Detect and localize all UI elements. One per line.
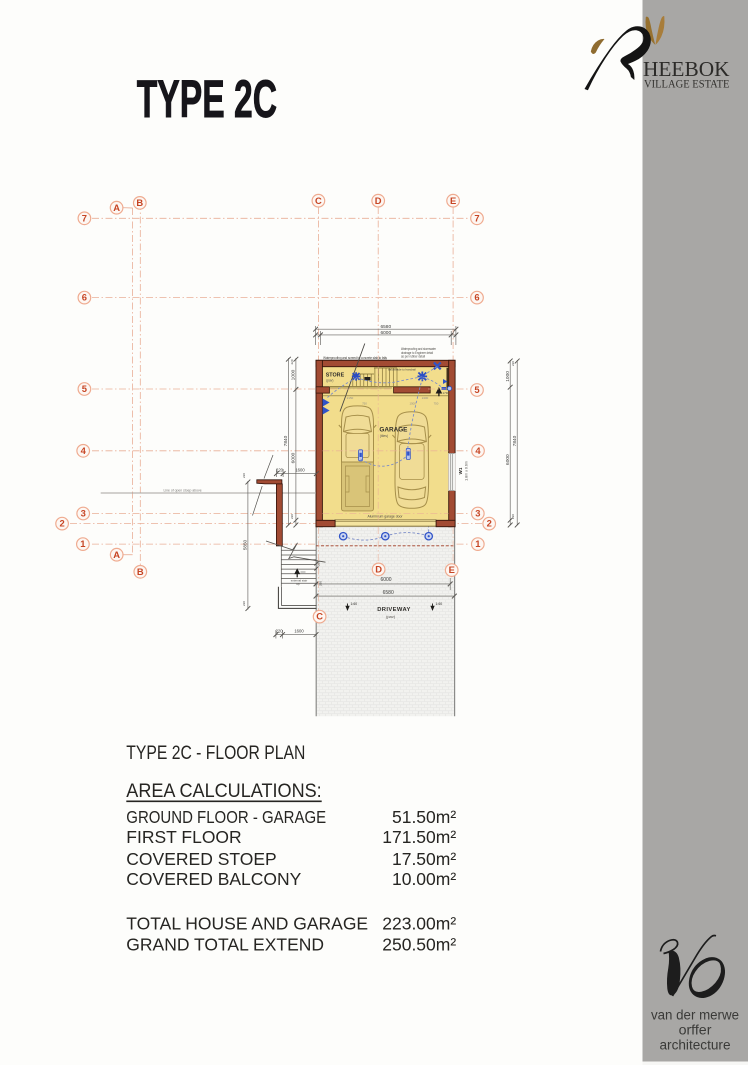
svg-text:6: 6 [82, 292, 87, 303]
svg-text:6580: 6580 [380, 324, 391, 330]
svg-text:AREA CALCULATIONS:: AREA CALCULATIONS: [126, 781, 321, 802]
svg-text:1500: 1500 [409, 402, 416, 406]
svg-text:750: 750 [434, 402, 439, 406]
svg-text:750: 750 [362, 402, 367, 406]
svg-text:6580: 6580 [383, 590, 394, 596]
svg-text:B: B [136, 197, 143, 208]
svg-text:1:60: 1:60 [351, 602, 358, 606]
svg-text:FIRST FLOOR: FIRST FLOOR [126, 827, 241, 847]
svg-text:GARAGE: GARAGE [379, 426, 408, 433]
svg-text:7840: 7840 [283, 435, 289, 446]
svg-text:GRAND TOTAL EXTEND: GRAND TOTAL EXTEND [126, 935, 324, 955]
svg-text:D: D [375, 195, 382, 206]
svg-text:orffer: orffer [679, 1023, 712, 1039]
svg-text:1000: 1000 [505, 371, 511, 382]
svg-text:DRIVEWAY: DRIVEWAY [377, 607, 411, 613]
svg-text:7840: 7840 [512, 435, 518, 446]
svg-text:1000: 1000 [291, 369, 297, 380]
svg-text:220: 220 [242, 601, 246, 606]
svg-text:2: 2 [59, 518, 64, 529]
svg-text:250: 250 [317, 561, 321, 566]
svg-text:COVERED BALCONY: COVERED BALCONY [126, 869, 301, 889]
svg-text:COVERED STOEP: COVERED STOEP [126, 849, 276, 869]
svg-text:6000: 6000 [380, 330, 391, 336]
svg-text:3: 3 [81, 508, 86, 519]
svg-text:(pav): (pav) [326, 379, 333, 383]
svg-text:B: B [137, 566, 144, 577]
svg-text:E: E [450, 195, 456, 206]
svg-text:223.00m²: 223.00m² [382, 913, 456, 933]
svg-text:7: 7 [82, 212, 87, 223]
svg-text:6000: 6000 [291, 452, 297, 463]
svg-text:E: E [449, 564, 455, 575]
svg-text:1600: 1600 [295, 468, 305, 473]
svg-text:51.50m²: 51.50m² [392, 807, 456, 827]
svg-text:220: 220 [242, 473, 246, 478]
svg-text:17.50m²: 17.50m² [392, 849, 456, 869]
svg-text:220: 220 [511, 361, 515, 366]
svg-text:220: 220 [276, 468, 284, 473]
svg-text:6000: 6000 [505, 454, 511, 465]
svg-text:250.50m²: 250.50m² [382, 935, 456, 955]
svg-text:220: 220 [276, 629, 284, 634]
svg-text:(tiles): (tiles) [380, 434, 388, 438]
svg-text:10.00m²: 10.00m² [392, 869, 456, 889]
svg-text:balustrade to handrail: balustrade to handrail [388, 368, 416, 372]
svg-text:as per rubber detail: as per rubber detail [401, 355, 425, 359]
svg-text:4: 4 [81, 445, 87, 456]
svg-text:1:60: 1:60 [436, 602, 443, 606]
svg-text:(pav): (pav) [386, 614, 396, 619]
svg-text:W1: W1 [458, 467, 463, 474]
svg-text:2150: 2150 [347, 396, 354, 400]
svg-text:up: up [296, 582, 300, 586]
svg-text:7: 7 [474, 212, 479, 223]
svg-text:TYPE 2C: TYPE 2C [137, 70, 277, 129]
svg-text:1: 1 [80, 538, 85, 549]
svg-text:VILLAGE ESTATE: VILLAGE ESTATE [644, 77, 730, 91]
svg-text:4: 4 [475, 445, 481, 456]
svg-text:6: 6 [474, 292, 479, 303]
svg-text:C: C [315, 195, 322, 206]
svg-text:5850: 5850 [242, 539, 247, 550]
svg-text:architecture: architecture [660, 1038, 731, 1054]
svg-text:2: 2 [487, 518, 492, 529]
svg-text:3: 3 [475, 508, 480, 519]
svg-text:5: 5 [474, 384, 479, 395]
svg-text:D: D [375, 564, 382, 575]
svg-text:171.50m²: 171.50m² [382, 827, 456, 847]
svg-text:A: A [113, 202, 120, 213]
svg-text:250: 250 [319, 581, 323, 586]
svg-text:TYPE 2C - FLOOR PLAN: TYPE 2C - FLOOR PLAN [126, 743, 305, 764]
svg-text:Aluminium garage door: Aluminium garage door [367, 514, 403, 518]
svg-text:6000: 6000 [380, 577, 391, 583]
svg-text:220: 220 [290, 359, 294, 364]
svg-text:220: 220 [290, 514, 294, 519]
svg-text:Line of open stoep above: Line of open stoep above [164, 489, 202, 493]
svg-text:A: A [113, 549, 120, 560]
svg-text:GROUND FLOOR - GARAGE: GROUND FLOOR - GARAGE [126, 807, 326, 827]
svg-text:1: 1 [475, 538, 480, 549]
svg-text:TOTAL HOUSE AND GARAGE: TOTAL HOUSE AND GARAGE [126, 913, 368, 933]
svg-text:1.8m x 0.6m: 1.8m x 0.6m [465, 461, 469, 481]
svg-text:5: 5 [82, 383, 87, 394]
svg-text:2400: 2400 [422, 396, 429, 400]
svg-text:van der merwe: van der merwe [651, 1008, 739, 1024]
svg-text:220: 220 [511, 514, 515, 519]
svg-text:1600: 1600 [294, 629, 304, 634]
svg-text:C: C [316, 611, 323, 622]
svg-text:17R: 17R [443, 391, 449, 395]
svg-text:Waterproofing and screed to co: Waterproofing and screed to concrete sla… [323, 356, 387, 360]
